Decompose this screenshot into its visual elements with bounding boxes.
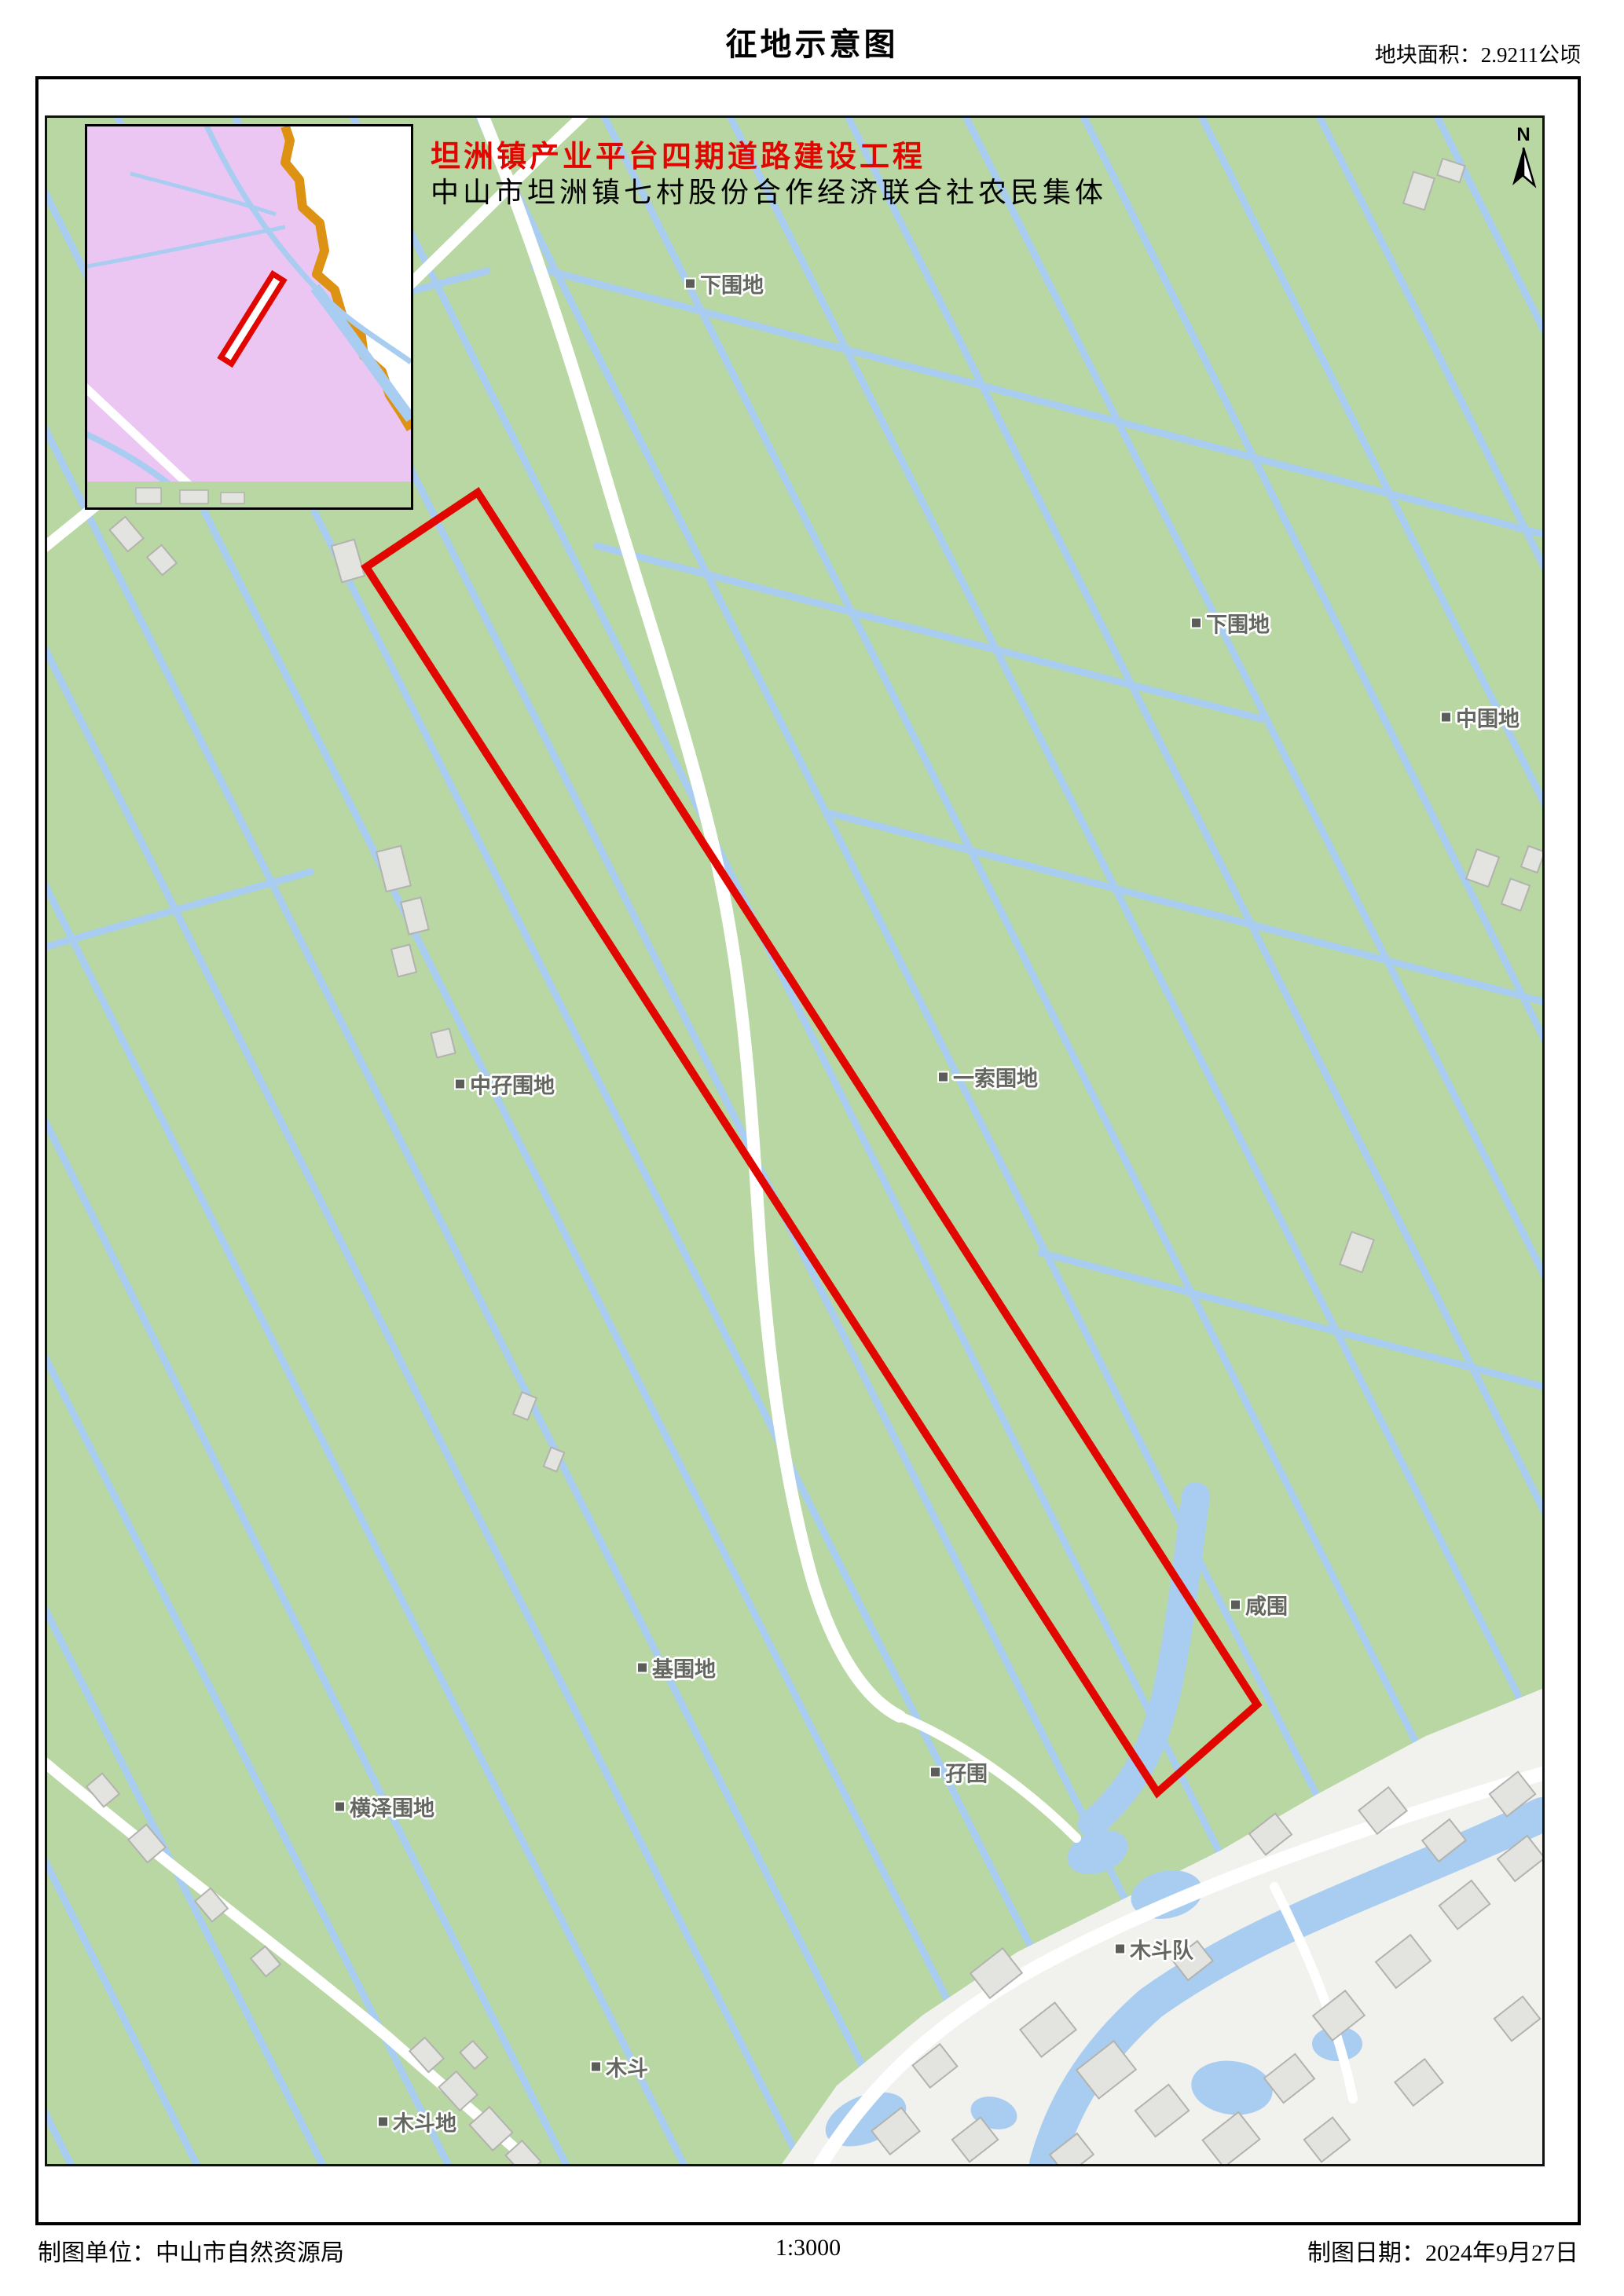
project-owner: 中山市坦洲镇七村股份合作经济联合社农民集体 [431,170,1107,211]
map-place-label: 横泽围地 [334,1792,434,1822]
place-marker-icon [1230,1599,1241,1611]
compass-arrow-icon [1505,145,1542,190]
footer: 制图单位：中山市自然资源局 1:3000 制图日期：2024年9月27日 [35,2233,1581,2272]
map-place-label: 咸围 [1230,1590,1288,1620]
map-place-label: 木斗地 [377,2107,456,2137]
place-marker-icon [454,1078,466,1090]
map-canvas[interactable]: 坦洲镇产业平台四期道路建设工程 中山市坦洲镇七村股份合作经济联合社农民集体 N [45,115,1545,2166]
place-marker-icon [377,2116,389,2128]
area-label: 地块面积：2.9211公顷 [1375,38,1581,68]
place-marker-icon [1190,617,1202,629]
place-marker-icon [1440,712,1452,723]
place-marker-icon [590,2061,602,2073]
place-marker-icon [929,1767,941,1778]
north-arrow: N [1505,126,1542,192]
place-marker-icon [684,278,696,290]
footer-date: 制图日期：2024年9月27日 [1307,2233,1578,2268]
map-place-label: 下围地 [1190,608,1270,639]
place-marker-icon [334,1801,346,1813]
north-letter: N [1505,126,1542,145]
map-place-label: 中围地 [1440,702,1520,733]
place-marker-icon [937,1071,949,1083]
map-place-label: 孖围 [929,1757,988,1788]
map-place-label: 下围地 [684,269,764,299]
map-place-label: 中孖围地 [454,1069,555,1100]
map-place-label: 基围地 [636,1653,716,1683]
place-marker-icon [1114,1943,1126,1955]
inset-overview-map [85,124,413,510]
place-marker-icon [636,1662,648,1674]
project-title: 坦洲镇产业平台四期道路建设工程 [431,132,926,175]
sheet: 征地示意图 地块面积：2.9211公顷 [0,0,1624,2296]
map-place-label: 木斗队 [1114,1934,1193,1965]
map-place-label: 一索围地 [937,1062,1038,1093]
map-place-label: 木斗 [590,2052,648,2082]
